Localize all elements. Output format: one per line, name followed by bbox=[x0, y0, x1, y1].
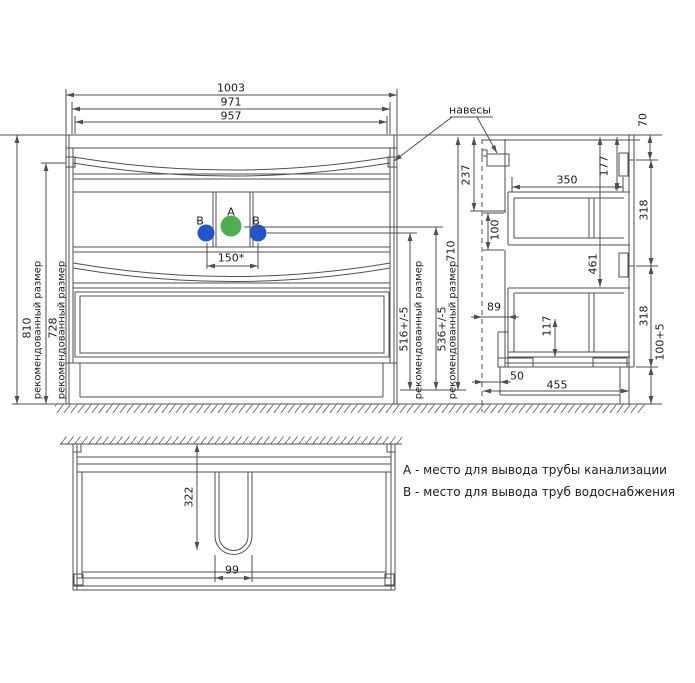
dim-label-drawer-top-inset: 177 bbox=[598, 156, 611, 177]
dim-label-overall-width: 1003 bbox=[217, 82, 245, 95]
lower-drawer-opening bbox=[75, 292, 389, 357]
wall-hatch bbox=[60, 437, 402, 445]
dim-label-drawer-reach: 461 bbox=[587, 254, 600, 275]
hanger-bracket-left bbox=[66, 157, 75, 167]
dim-label-bottom-rail: 117 bbox=[541, 316, 554, 337]
siphon-cutout bbox=[215, 472, 252, 555]
dim-label-cutout-width: 99 bbox=[225, 564, 239, 577]
legend-line-b: B - место для вывода труб водоснабжения bbox=[403, 485, 675, 499]
dim-label-b-outlet-height: 516+/-5 bbox=[398, 307, 411, 352]
recommended-size-note-2: рекомендованный размер bbox=[57, 261, 68, 399]
front-dim-lines bbox=[17, 95, 474, 404]
hangers-label: навесы bbox=[449, 104, 491, 117]
dim-label-cutout-depth: 322 bbox=[183, 487, 196, 508]
dim-label-back-opening: 100 bbox=[489, 220, 502, 241]
drawing-linework bbox=[0, 0, 695, 683]
dim-label-drawer-depth: 350 bbox=[557, 174, 578, 187]
dim-label-plinth-height: 100+5 bbox=[654, 323, 667, 360]
recommended-size-note-4: рекомендованный размер bbox=[448, 261, 459, 399]
dim-label-hanger-drop: 237 bbox=[460, 165, 473, 186]
hanger-bracket-right bbox=[388, 157, 397, 167]
outlet-a-label: A bbox=[227, 206, 235, 219]
dim-label-mid-width: 971 bbox=[221, 96, 242, 109]
recommended-size-note-3: рекомендованный размер bbox=[414, 261, 425, 399]
outlet-b-right-label: B bbox=[252, 215, 260, 228]
vanity-dimension-drawing: 1003 971 957 810 рекомендованный размер … bbox=[0, 0, 695, 683]
dim-label-inner-width: 957 bbox=[221, 110, 242, 123]
dim-label-body-height: 710 bbox=[445, 241, 458, 262]
dim-label-countertop: 70 bbox=[637, 113, 650, 127]
lower-handle-recess bbox=[619, 253, 628, 277]
dim-label-back-gap: 89 bbox=[487, 301, 501, 314]
outlet-a-marker bbox=[221, 216, 242, 237]
dim-label-depth: 455 bbox=[547, 379, 568, 392]
legend-line-a: A - место для вывода трубы канализации bbox=[403, 463, 667, 477]
recommended-size-note-1: рекомендованный размер bbox=[33, 261, 44, 399]
dim-label-lower-front: 318 bbox=[638, 306, 651, 327]
side-dim-extensions bbox=[483, 160, 658, 367]
floor-hatch bbox=[55, 405, 645, 414]
dim-label-plinth-recess: 50 bbox=[510, 370, 524, 383]
hanger-profile bbox=[487, 154, 509, 166]
dim-label-outlet-spacing: 150* bbox=[218, 252, 245, 265]
front-view-linework bbox=[66, 135, 397, 404]
outlet-b-left-label: B bbox=[196, 215, 204, 228]
upper-handle-recess bbox=[619, 153, 628, 176]
dim-label-upper-front: 318 bbox=[638, 200, 651, 221]
